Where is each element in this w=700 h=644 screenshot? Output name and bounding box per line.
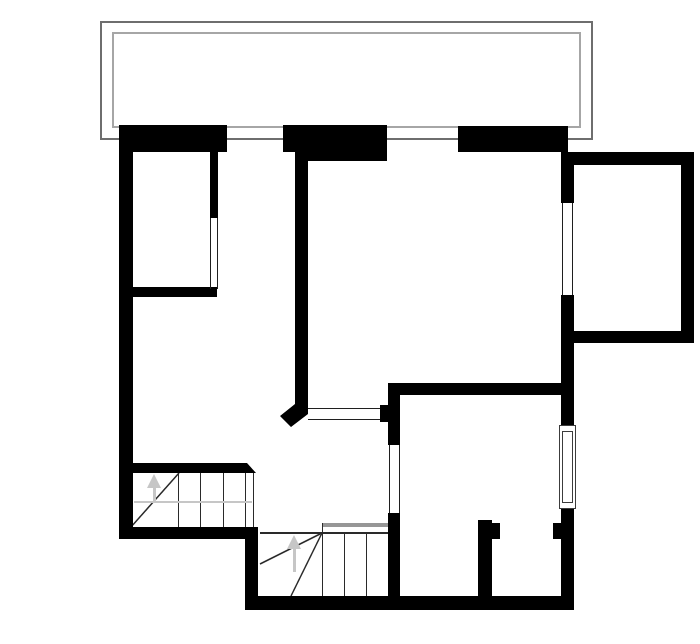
- right-window-frame-outer: [559, 425, 575, 508]
- room2-left-wall-upper: [388, 383, 400, 445]
- room1-bottom-wall: [119, 287, 217, 297]
- top-wall-left: [119, 125, 227, 152]
- closet-pier: [478, 520, 492, 600]
- closet-pier-stub: [492, 523, 500, 539]
- right-wall-mid: [561, 295, 574, 425]
- floor-plan: [0, 0, 700, 644]
- bay-bottom-wall: [574, 331, 694, 343]
- bottom-exterior-wall: [245, 596, 574, 610]
- room1-partition-wall: [210, 152, 218, 218]
- stair-lower-stringer: [322, 523, 398, 527]
- top-wall-mid: [283, 125, 307, 152]
- top-wall-right: [458, 126, 568, 152]
- bay-right-wall: [681, 152, 694, 343]
- room2-left-wall-lower: [388, 513, 400, 598]
- closet-right-wall-stub: [553, 523, 561, 539]
- bay-top-wall: [568, 152, 694, 165]
- top-wall-mid-thick: [307, 125, 387, 161]
- balcony-inner-outline: [113, 33, 580, 127]
- center-wall-chamfer-end: [280, 400, 308, 427]
- right-wall-lower: [561, 508, 574, 608]
- pass-through-jamb-stub: [380, 405, 388, 422]
- stair-lower-arrow-head: [287, 535, 301, 549]
- stair-top-wall: [133, 463, 247, 473]
- left-exterior-wall: [119, 125, 133, 538]
- plan-svg: [0, 0, 700, 644]
- stair-top-wall-angled-end: [247, 463, 256, 473]
- stair-upper-arrow-head: [147, 474, 161, 488]
- room2-top-wall: [388, 383, 573, 395]
- bottom-left-exterior-wall: [119, 527, 258, 539]
- balcony-outer-outline: [101, 22, 592, 139]
- center-wall: [295, 151, 308, 405]
